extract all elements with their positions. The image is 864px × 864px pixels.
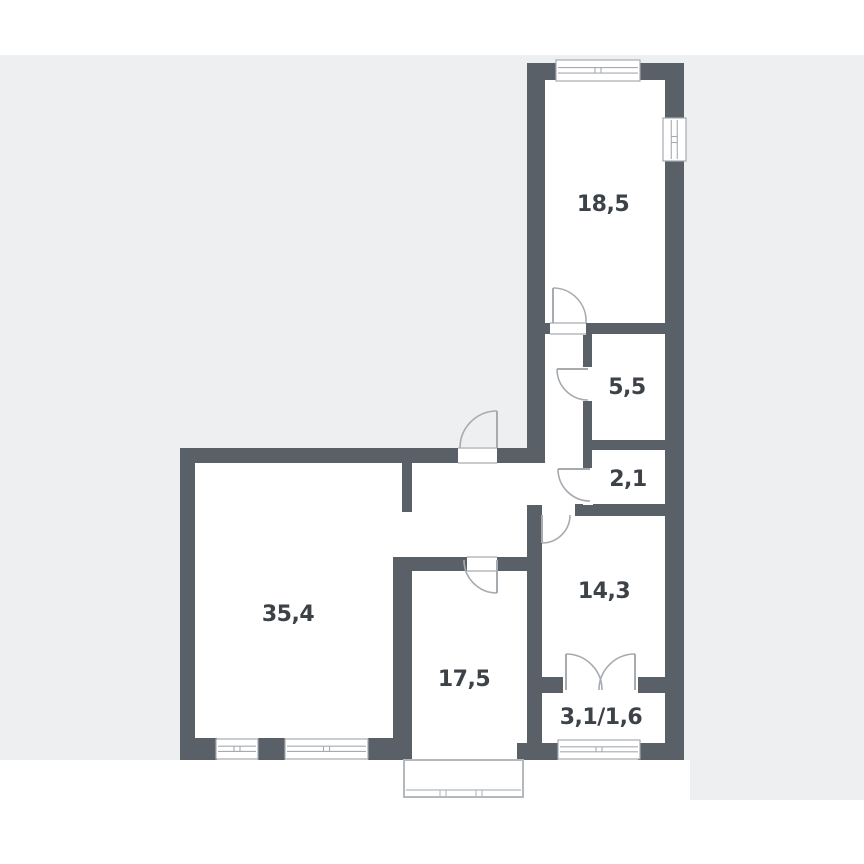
wall-segment: [583, 440, 665, 450]
wall-segment: [575, 504, 665, 516]
window: [285, 739, 368, 759]
wall-segment: [665, 63, 684, 120]
wall-segment: [665, 160, 684, 760]
wall-segment: [542, 677, 563, 693]
floor-plan-drawing: 18,55,52,114,33,1/1,635,417,5: [0, 0, 864, 864]
under-building-white-band: [0, 760, 690, 800]
room-area-label-balcony: 3,1/1,6: [560, 705, 643, 730]
wall-segment: [393, 557, 467, 571]
wall-segment: [638, 677, 665, 693]
wall-segment: [393, 557, 412, 760]
wall-segment: [527, 505, 542, 743]
door-opening: [550, 322, 586, 335]
wall-segment: [497, 448, 545, 463]
interior-floor-area: [180, 448, 545, 760]
wall-segment: [583, 333, 592, 368]
wall-segment: [517, 743, 558, 760]
wall-segment: [527, 63, 545, 463]
door-opening: [583, 468, 593, 505]
room-area-label-room-14-3: 14,3: [578, 579, 630, 604]
wall-segment: [585, 323, 665, 334]
door-opening: [467, 556, 497, 572]
room-area-label-room-18-5: 18,5: [577, 192, 629, 217]
terrace-outline: [404, 760, 523, 797]
window: [558, 740, 640, 759]
room-area-label-room-35-4: 35,4: [262, 602, 314, 627]
door-opening: [542, 503, 575, 517]
wall-segment: [527, 323, 550, 334]
wall-segment: [583, 400, 592, 469]
floor-plan-page: 18,55,52,114,33,1/1,635,417,5: [0, 0, 864, 864]
window: [663, 118, 686, 161]
window: [216, 739, 258, 759]
room-area-label-room-2-1: 2,1: [609, 467, 646, 492]
door-opening: [583, 367, 593, 401]
room-area-label-hall-17-5: 17,5: [438, 667, 490, 692]
page-top-band: [0, 0, 864, 55]
wall-segment: [258, 738, 285, 760]
wall-segment: [638, 743, 670, 760]
wall-segment: [497, 557, 527, 571]
room-area-label-room-5-5: 5,5: [608, 375, 645, 400]
window: [556, 60, 640, 81]
wall-segment: [180, 448, 195, 760]
wall-segment: [180, 448, 458, 463]
door-opening: [458, 447, 497, 464]
wall-segment: [402, 463, 412, 512]
wall-segment: [180, 738, 217, 760]
page-bottom-band: [0, 800, 864, 864]
